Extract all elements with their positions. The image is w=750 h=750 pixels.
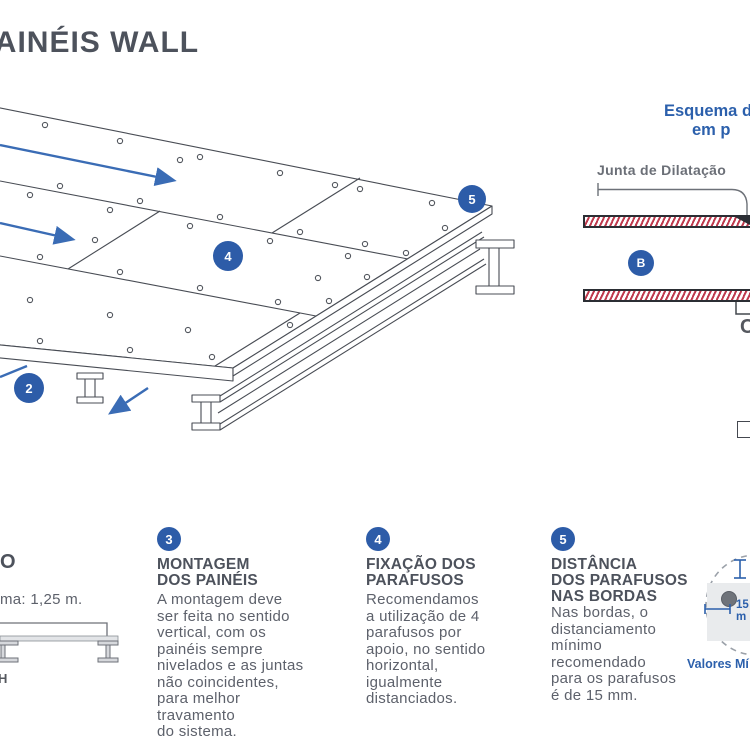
plan-section-title-line1: Esquema d (664, 102, 750, 121)
col1-body-fragment: ma: 1,25 m. (0, 591, 83, 608)
panel-installation-isometric-diagram (0, 80, 530, 452)
callout-4: 4 (213, 241, 243, 271)
callout-5: 5 (458, 185, 486, 213)
edge-rectangle-detail (737, 421, 750, 438)
callout-b: B (628, 250, 654, 276)
step-5-body: Nas bordas, o distanciamento mínimo reco… (551, 605, 691, 704)
panel-deck-top (0, 92, 492, 368)
step-5-heading: DISTÂNCIA DOS PARAFUSOS NAS BORDAS (551, 557, 701, 605)
col1-heading-fragment: O (0, 551, 16, 574)
i-beam-end-left (192, 395, 220, 430)
step-3-body: A montagem deve ser feita no sentido ver… (157, 592, 322, 741)
catalog-page: PAINÉIS WALL (0, 0, 750, 750)
joint-dimension-line (560, 178, 750, 218)
edge-distance-value-line2: m (736, 611, 746, 623)
edge-distance-value-line1: 15 m (736, 599, 750, 611)
step-4-badge: 4 (366, 527, 390, 551)
expansion-joint-label: Junta de Dilatação (597, 162, 726, 178)
step-4-heading: FIXAÇÃO DOS PARAFUSOS (366, 557, 516, 589)
screw-icon (722, 592, 737, 607)
minimum-values-caption: Valores Mí (687, 657, 749, 671)
col1-beam-label-fragment: H (0, 671, 7, 686)
step-5-badge: 5 (551, 527, 575, 551)
page-title: PAINÉIS WALL (0, 26, 199, 60)
step-3-heading: MONTAGEM DOS PAINÉIS (157, 557, 317, 589)
plan-section-title-line2: em p (692, 121, 731, 140)
i-beam-end-middle (77, 373, 103, 403)
step-4-body: Recomendamos a utilização de 4 parafusos… (366, 592, 516, 708)
step-3-badge: 3 (157, 527, 181, 551)
edge-letter-fragment: C (740, 316, 750, 339)
panel-strip-hatched-top (583, 215, 750, 228)
callout-2: 2 (14, 373, 44, 403)
beam-span-diagram (0, 612, 130, 672)
